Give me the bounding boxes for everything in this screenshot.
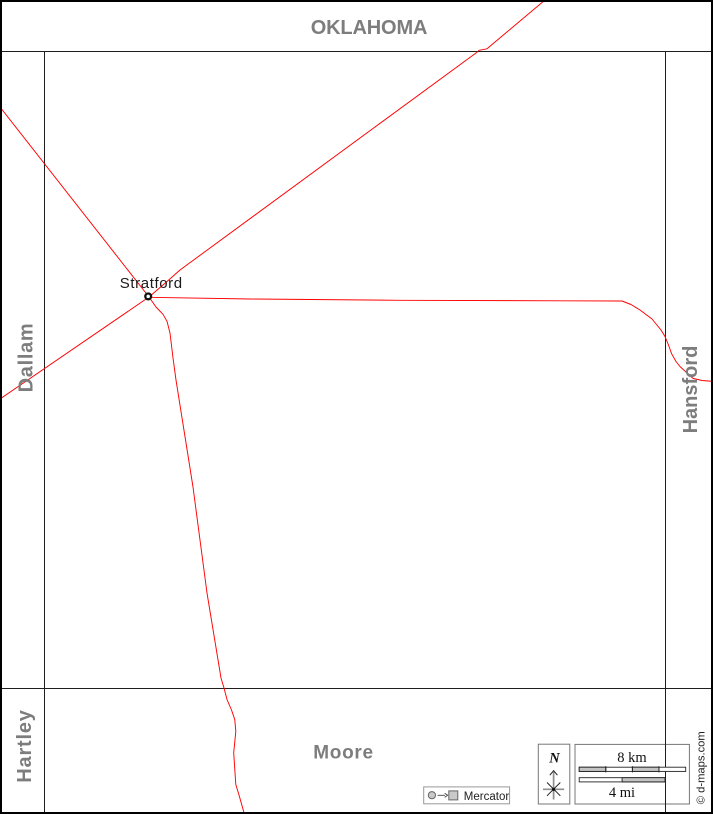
svg-text:Hansford: Hansford xyxy=(680,346,702,434)
svg-text:8 km: 8 km xyxy=(617,750,647,766)
svg-text:© d-maps.com: © d-maps.com xyxy=(696,731,708,804)
svg-text:Mercator: Mercator xyxy=(464,791,510,803)
svg-text:4 mi: 4 mi xyxy=(609,785,635,801)
svg-text:Moore: Moore xyxy=(313,742,374,763)
svg-text:N: N xyxy=(548,751,560,767)
svg-text:Hartley: Hartley xyxy=(14,709,36,782)
svg-text:Dallam: Dallam xyxy=(16,323,38,393)
svg-text:OKLAHOMA: OKLAHOMA xyxy=(311,17,428,39)
svg-text:Stratford: Stratford xyxy=(120,275,183,292)
